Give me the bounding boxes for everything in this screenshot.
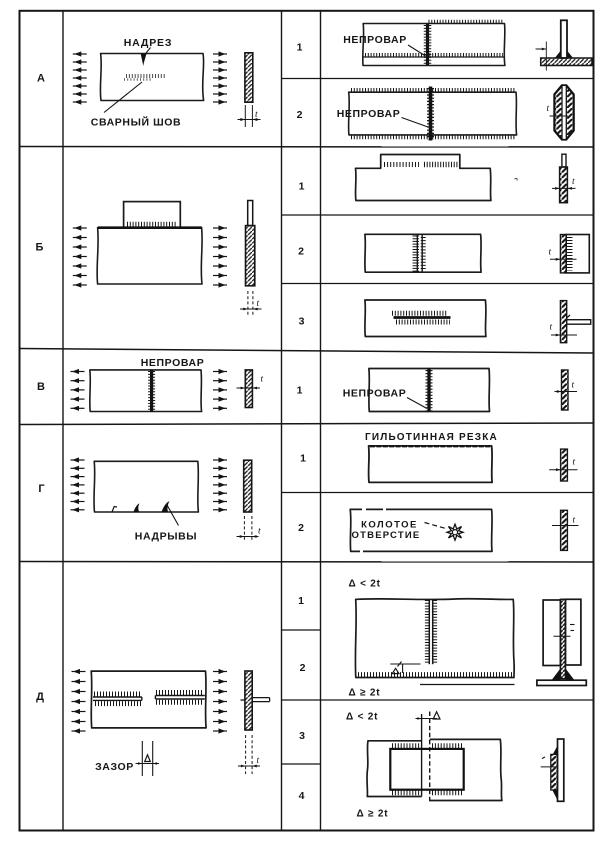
svg-text:ОТВЕРСТИЕ: ОТВЕРСТИЕ — [352, 530, 421, 541]
svg-text:СВАРНЫЙ ШОВ: СВАРНЫЙ ШОВ — [91, 116, 181, 129]
svg-text:2: 2 — [297, 109, 303, 121]
svg-text:Δ ≥ 2t: Δ ≥ 2t — [357, 809, 389, 820]
svg-text:Г: Г — [38, 483, 45, 495]
svg-text:t: t — [257, 299, 260, 309]
svg-text:t: t — [573, 458, 576, 468]
svg-text:НЕПРОВАР: НЕПРОВАР — [343, 388, 407, 400]
svg-text:t: t — [549, 248, 552, 258]
svg-text:Д: Д — [36, 691, 44, 703]
svg-text:НЕПРОВАР: НЕПРОВАР — [337, 108, 401, 120]
svg-text:t: t — [261, 375, 264, 385]
svg-text:НЕПРОВАР: НЕПРОВАР — [343, 34, 407, 46]
svg-text:2: 2 — [298, 246, 304, 258]
svg-text:4: 4 — [299, 790, 305, 802]
svg-text:Δ < 2t: Δ < 2t — [349, 579, 381, 590]
svg-text:t: t — [255, 110, 258, 120]
svg-text:ЗАЗОР: ЗАЗОР — [95, 761, 134, 773]
svg-text:1: 1 — [298, 595, 304, 607]
svg-text:В: В — [37, 381, 45, 393]
svg-text:КОЛОТОЕ: КОЛОТОЕ — [361, 520, 418, 531]
svg-text:ГИЛЬОТИННАЯ РЕЗКА: ГИЛЬОТИННАЯ РЕЗКА — [365, 432, 498, 443]
svg-text:2: 2 — [300, 662, 306, 674]
svg-text:НАДРЕЗ: НАДРЕЗ — [124, 37, 172, 49]
svg-text:t: t — [550, 323, 553, 333]
svg-text:Б: Б — [36, 242, 44, 254]
svg-text:1: 1 — [300, 453, 306, 465]
svg-text:Δ ≥ 2t: Δ ≥ 2t — [349, 688, 381, 699]
svg-text:А: А — [37, 73, 45, 85]
svg-text:3: 3 — [299, 730, 305, 742]
svg-text:t: t — [572, 177, 575, 187]
svg-text:Δ < 2t: Δ < 2t — [346, 712, 378, 723]
svg-text:3: 3 — [299, 316, 305, 328]
svg-text:t: t — [547, 104, 550, 114]
svg-text:t: t — [257, 756, 260, 766]
svg-text:1: 1 — [299, 181, 305, 193]
svg-text:2: 2 — [298, 522, 304, 534]
svg-text:НАДРЫВЫ: НАДРЫВЫ — [135, 531, 197, 543]
svg-text:НЕПРОВАР: НЕПРОВАР — [141, 357, 205, 369]
svg-text:t: t — [573, 516, 576, 526]
svg-text:t: t — [258, 527, 261, 537]
svg-text:t: t — [572, 381, 575, 391]
svg-text:1: 1 — [297, 385, 303, 397]
svg-text:1: 1 — [297, 42, 303, 54]
